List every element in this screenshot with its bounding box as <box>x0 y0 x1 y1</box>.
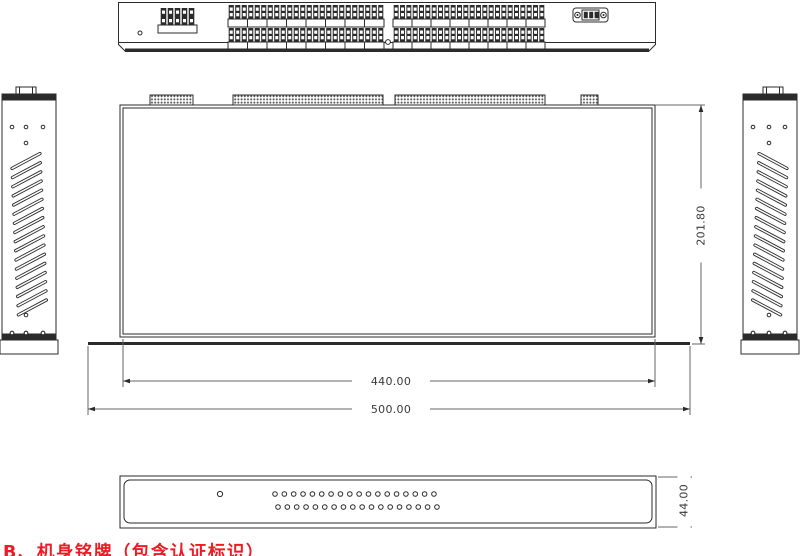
right-side-panel-view <box>740 84 800 360</box>
screw-hole <box>386 40 391 45</box>
annotation-note: B、机身铭牌（包含认证标识） <box>3 539 265 556</box>
aux-terminal-block <box>158 8 197 33</box>
rear-connector-blocks-hatched <box>150 95 598 105</box>
serial-connector <box>573 8 608 22</box>
front-panel-view <box>110 468 710 544</box>
dim-label-outer-width: 500.00 <box>352 403 430 416</box>
dim-label-inner-width: 440.00 <box>352 375 430 388</box>
dim-label-depth: 201.80 <box>695 189 708 263</box>
indicator-hole <box>217 491 222 496</box>
left-side-panel-view <box>0 84 62 360</box>
side-panel-outline <box>0 87 58 354</box>
screw-hole <box>138 31 142 35</box>
chassis-body-outline <box>88 105 690 344</box>
rear-panel-view <box>116 1 658 54</box>
dim-label-height: 44.00 <box>678 469 691 533</box>
technical-drawing-sheet: 440.00 500.00 201.80 44.00 B、机身铭牌（包含认证标识… <box>0 0 800 556</box>
front-panel-outline <box>120 476 656 528</box>
